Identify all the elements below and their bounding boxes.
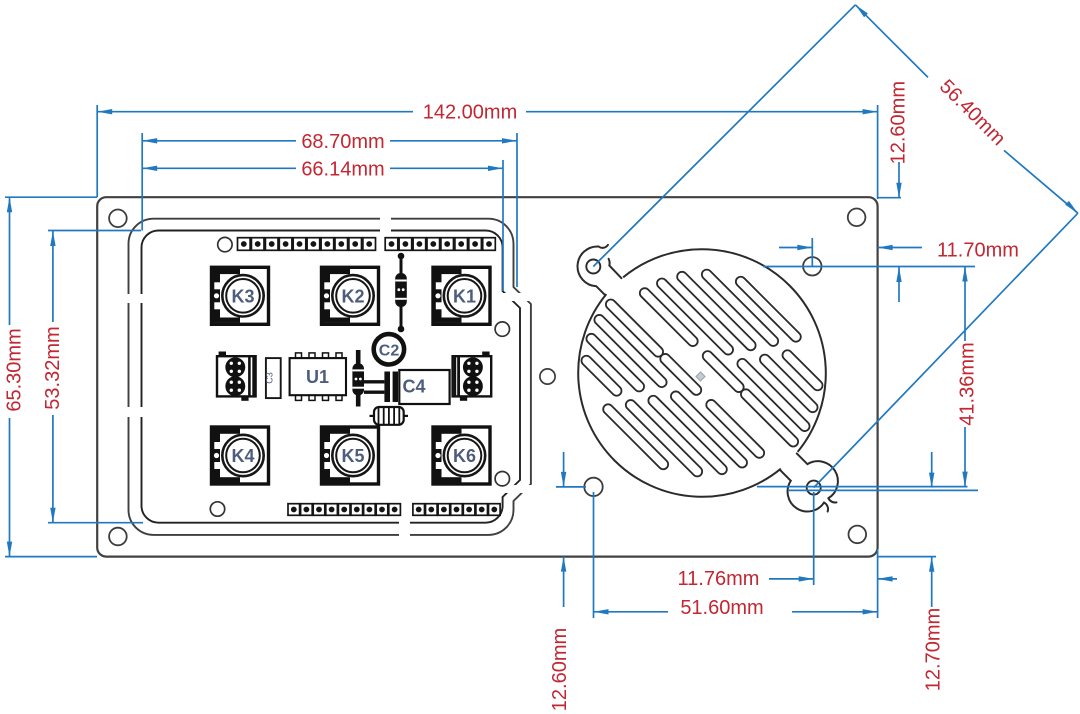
svg-text:U1: U1 [306,367,329,387]
svg-text:C4: C4 [402,377,425,397]
svg-text:K3: K3 [231,286,254,306]
svg-text:K2: K2 [341,286,364,306]
svg-text:C3: C3 [265,372,275,384]
svg-text:11.70mm: 11.70mm [937,240,1019,262]
svg-text:41.36mm: 41.36mm [957,342,979,425]
svg-text:K1: K1 [453,286,476,306]
svg-text:12.60mm: 12.60mm [888,81,910,164]
svg-text:12.70mm: 12.70mm [923,608,945,691]
svg-text:142.00mm: 142.00mm [423,102,518,124]
svg-text:53.32mm: 53.32mm [42,326,64,409]
svg-text:68.70mm: 68.70mm [301,131,384,153]
svg-text:K4: K4 [231,446,254,466]
svg-text:66.14mm: 66.14mm [301,158,384,180]
svg-text:K6: K6 [453,446,476,466]
svg-text:K5: K5 [341,446,364,466]
svg-text:51.60mm: 51.60mm [680,597,763,619]
svg-text:C2: C2 [379,343,400,360]
svg-text:11.76mm: 11.76mm [678,568,760,590]
svg-text:12.60mm: 12.60mm [549,628,571,711]
svg-text:65.30mm: 65.30mm [4,328,26,411]
